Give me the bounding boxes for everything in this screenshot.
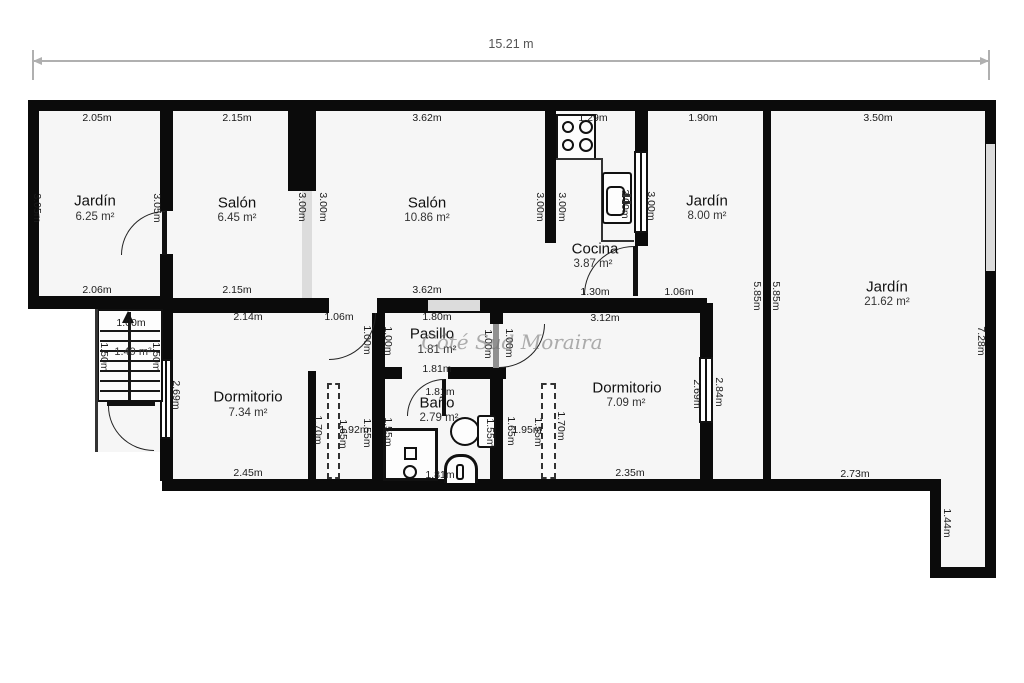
wall-notch-left: [930, 479, 941, 578]
shower-head-icon: [403, 465, 417, 479]
dim-dorm1-top: 2.14m: [233, 311, 262, 323]
room-name-jardin3: Jardín: [866, 279, 908, 296]
wall-salon1-salon2: [288, 100, 316, 191]
dim-notch-right: 1.44m: [941, 508, 953, 537]
stairwell-outer-line: [95, 309, 98, 452]
dim-jardin1-bottom: 2.06m: [82, 284, 111, 296]
dim-salon2-top: 3.62m: [412, 112, 441, 124]
dimension-line: [33, 60, 989, 62]
wall-pasillo-right-stub: [490, 302, 503, 324]
wall-dorm2-right-upper: [700, 303, 713, 358]
dim-jardin1-top: 2.05m: [82, 112, 111, 124]
dimension-tick-right: [988, 50, 990, 80]
room-area-jardin2: 8.00 m²: [688, 210, 727, 222]
dim-jardin2-bottom: 1.06m: [664, 286, 693, 298]
room-name-jardin1: Jardín: [74, 193, 116, 210]
dimension-tick-left: [32, 50, 34, 80]
dim-salon2-right: 3.00m: [534, 192, 546, 221]
room-area-dorm1: 7.34 m²: [229, 407, 268, 419]
dim-pasillo-left: 1.00m: [382, 326, 394, 355]
dim-dorm1-door-side: 1.00m: [361, 325, 373, 354]
dim-dorm2-top: 3.12m: [590, 312, 619, 324]
dim-jardin3-top: 3.50m: [863, 112, 892, 124]
watermark: Côté Sud Moraira: [421, 330, 602, 354]
stove-burner-icon: [579, 138, 593, 152]
room-area-salon1: 6.45 m²: [218, 212, 257, 224]
top-band-floor: [28, 100, 996, 309]
dim-cocina-bottom: 1.30m: [580, 286, 609, 298]
dim-bano-bottom: 1.81m: [425, 469, 454, 481]
dim-salon1-bottom: 2.15m: [222, 284, 251, 296]
dim-divider-right: 5.85m: [770, 281, 782, 310]
room-name-dorm2: Dormitorio: [592, 380, 661, 397]
dim-bano-left: 1.55m: [382, 417, 394, 446]
dim-strip1-a: 1.65m: [337, 419, 349, 448]
dim-dorm1-bottom: 2.45m: [233, 467, 262, 479]
room-name-cocina: Cocina: [572, 241, 619, 258]
dim-dorm2-right-outer: 2.84m: [713, 377, 725, 406]
dimension-arrow-left-icon: [33, 57, 42, 65]
wall-dorm2-right-lower: [700, 422, 713, 481]
window-outer-right: [986, 144, 995, 271]
dim-dorm2-right: 2.69m: [691, 379, 703, 408]
bathroom-faucet-icon: [456, 464, 464, 480]
room-area-salon2: 10.86 m²: [404, 212, 449, 224]
dim-salon1-right: 3.00m: [296, 192, 308, 221]
room-area-cocina: 3.87 m²: [574, 258, 613, 270]
dim-salon1-top: 2.15m: [222, 112, 251, 124]
shower-drain-icon: [404, 447, 417, 460]
room-area-dorm2: 7.09 m²: [607, 397, 646, 409]
dim-cocina-top: 1.29m: [578, 112, 607, 124]
dim-jardin3-bottom: 2.73m: [840, 468, 869, 480]
room-area-stairs: 1.49 m²: [114, 346, 151, 358]
stove-burner-icon: [562, 139, 574, 151]
dim-dorm1-left: 2.69m: [170, 380, 182, 409]
dim-jardin2-left: 3.00m: [645, 191, 657, 220]
room-area-jardin3: 21.62 m²: [864, 296, 909, 308]
window-pasillo: [428, 300, 480, 311]
dim-stairs-left: 1.50m: [98, 342, 110, 371]
room-area-bano: 2.79 m²: [420, 412, 459, 424]
dim-cocina-left: 3.00m: [556, 192, 568, 221]
kitchen-counter-line: [556, 158, 602, 160]
dim-cocina-right: 3.00m: [619, 189, 631, 218]
dim-pasillo-top: 1.80m: [422, 311, 451, 323]
wall-outer-bottom: [162, 479, 941, 491]
window-dorm1-midline: [165, 359, 167, 439]
wall-salon2-cocina: [545, 100, 556, 243]
floor-plan: 15.21 m: [0, 0, 1024, 683]
dim-pasillo-bottom: 1.81m: [422, 363, 451, 375]
dim-dorm1-door: 1.06m: [324, 311, 353, 323]
dim-jardin3-right: 7.28m: [975, 326, 987, 355]
dim-jardin2-top: 1.90m: [688, 112, 717, 124]
room-name-jardin2: Jardín: [686, 193, 728, 210]
stove-burner-icon: [562, 121, 574, 133]
room-area-jardin1: 6.25 m²: [76, 211, 115, 223]
dim-salon2-bottom: 3.62m: [412, 284, 441, 296]
dim-strip2-c: 1.55m: [532, 417, 544, 446]
dim-strip2-a: 1.65m: [505, 416, 517, 445]
window-cocina-midline: [640, 151, 642, 233]
dimension-arrow-right-icon: [980, 57, 989, 65]
dim-strip1-wardrobe: 1.70m: [312, 415, 324, 444]
dim-bano-top: 1.81m: [425, 386, 454, 398]
dim-jardin1-right: 3.05m: [151, 193, 163, 222]
room-name-salon1: Salón: [218, 195, 256, 212]
dim-stairs-top: 1.00m: [116, 317, 145, 329]
dim-strip2-wardrobe: 1.70m: [555, 411, 567, 440]
wall-jardin1-bottom: [28, 296, 173, 309]
wall-jardin1-salon-lower: [160, 254, 173, 302]
dim-salon2-left: 3.00m: [317, 192, 329, 221]
dim-stairs-right: 1.50m: [150, 342, 162, 371]
room-name-salon2: Salón: [408, 195, 446, 212]
wall-bano-top-left: [372, 367, 402, 379]
window-dorm2-midline: [705, 357, 707, 423]
wall-notch-bottom: [930, 567, 996, 578]
dim-bano-tank: 1.55m: [484, 418, 496, 447]
total-width-label: 15.21 m: [488, 37, 533, 51]
wall-outer-top: [28, 100, 996, 111]
dim-divider-left: 5.85m: [751, 281, 763, 310]
room-name-dorm1: Dormitorio: [213, 389, 282, 406]
dim-dorm2-bottom: 2.35m: [615, 467, 644, 479]
dim-jardin1-left: 3.05m: [31, 193, 43, 222]
dim-strip1-c: 1.55m: [361, 418, 373, 447]
